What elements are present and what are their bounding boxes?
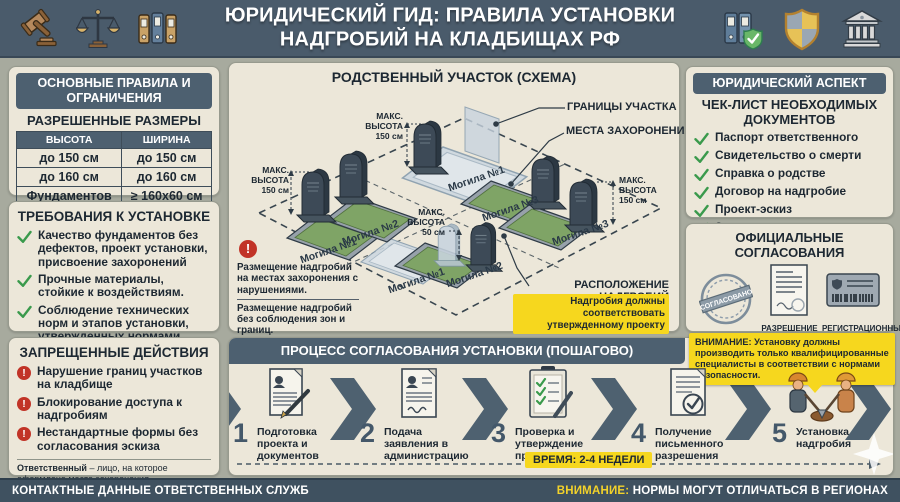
checklist-icon	[525, 366, 573, 425]
approvals-panel: ОФИЦИАЛЬНЫЕ СОГЛАСОВАНИЯ СОГЛАСОВАНО СОГ…	[685, 223, 894, 332]
headstone	[297, 169, 336, 222]
warning-icon: !	[17, 397, 31, 411]
sizes-col-height: ВЫСОТА	[17, 132, 122, 149]
checklist-title: ЧЕК-ЛИСТ НЕОБХОДИМЫХ ДОКУМЕНТОВ	[686, 98, 893, 128]
check-icon	[694, 167, 709, 182]
table-cell: до 160 см	[17, 168, 122, 187]
list-item: Качество фундаментов без дефектов, проек…	[9, 229, 219, 273]
page-title-line1: ЮРИДИЧЕСКИЙ ГИД: ПРАВИЛА УСТАНОВКИ	[200, 4, 700, 28]
sizes-table: ВЫСОТА ШИРИНА до 150 см до 150 см до 160…	[16, 131, 212, 206]
check-icon	[694, 149, 709, 164]
header-icons-left	[16, 7, 180, 51]
list-item: Свидетельство о смерти	[686, 149, 893, 167]
list-item: ! Нестандартные формы без согласования э…	[9, 426, 219, 457]
page-title-line2: НАДГРОБИЙ НА КЛАДБИЩАХ РФ	[200, 28, 700, 52]
list-item: Паспорт ответственного	[686, 131, 893, 149]
scheme-title: РОДСТВЕННЫЙ УЧАСТОК (СХЕМА)	[229, 69, 679, 85]
approvals-icons: СОГЛАСОВАНО СОГЛАСОВАНО РАЗРЕШЕНИЕ НА УС…	[694, 264, 885, 343]
table-cell: до 150 см	[17, 149, 122, 168]
check-icon	[694, 203, 709, 218]
attention-label: ВНИМАНИЕ:	[695, 337, 752, 347]
requirements-title: ТРЕБОВАНИЯ К УСТАНОВКЕ	[13, 209, 215, 224]
requirement-text: Качество фундаментов без дефектов, проек…	[38, 229, 211, 269]
placement-note: Надгробия должны соответствовать утвержд…	[513, 294, 669, 334]
approval-item: РЕГИСТРАЦИОННЫЙ НОМЕР	[822, 264, 885, 343]
document-item: Проект-эскиз	[715, 203, 792, 216]
document-item: Паспорт ответственного	[715, 131, 858, 144]
bank-icon	[840, 7, 884, 51]
step-label: Установка надгробия	[796, 426, 886, 450]
max-height-label: МАКС. ВЫСОТА 150 см	[619, 175, 667, 205]
legal-header: ЮРИДИЧЕСКИЙ АСПЕКТ	[693, 73, 886, 94]
page-title: ЮРИДИЧЕСКИЙ ГИД: ПРАВИЛА УСТАНОВКИ НАДГР…	[200, 4, 700, 53]
time-badge: ВРЕМЯ: 2-4 НЕДЕЛИ	[525, 452, 652, 468]
warning-icon: !	[17, 366, 31, 380]
approval-item: РАЗРЕШЕНИЕ НА УСТАНОВКУ	[758, 264, 821, 343]
legal-panel: ЮРИДИЧЕСКИЙ АСПЕКТ ЧЕК-ЛИСТ НЕОБХОДИМЫХ …	[685, 66, 894, 218]
step-number: 3	[491, 418, 506, 449]
rules-header: ОСНОВНЫЕ ПРАВИЛА И ОГРАНИЧЕНИЯ	[16, 73, 212, 109]
check-icon	[694, 185, 709, 200]
permit-document-icon	[769, 264, 809, 316]
plot-borders-label: ГРАНИЦЫ УЧАСТКА	[567, 101, 677, 113]
step-number: 4	[631, 418, 646, 449]
binders-icon	[136, 7, 180, 51]
step-number: 1	[233, 418, 248, 449]
rules-panel: ОСНОВНЫЕ ПРАВИЛА И ОГРАНИЧЕНИЯ РАЗРЕШЕНН…	[8, 66, 220, 196]
requirement-text: Прочные материалы, стойкие к воздействия…	[38, 273, 211, 300]
max-height-label: МАКС. ВЫСОТА 50 см	[399, 207, 445, 237]
approvals-title: ОФИЦИАЛЬНЫЕ СОГЛАСОВАНИЯ	[688, 230, 891, 260]
forbidden-title: ЗАПРЕЩЕННЫЕ ДЕЙСТВИЯ	[13, 345, 215, 360]
workers-icon	[779, 368, 865, 427]
list-item: ! Нарушение границ участков на кладбище	[9, 365, 219, 396]
header-icons-right	[720, 7, 884, 51]
violation-text: Размещение надгробий без соблюдения зон …	[237, 303, 359, 337]
footer-region-note: ВНИМАНИЕ: НОРМЫ МОГУТ ОТЛИЧАТЬСЯ В РЕГИО…	[557, 485, 888, 497]
max-height-label: МАКС. ВЫСОТА 150 см	[355, 111, 403, 141]
step-number: 2	[360, 418, 375, 449]
forbidden-text: Нарушение границ участков на кладбище	[37, 365, 211, 392]
forbidden-text: Блокирование доступа к надгробиям	[37, 396, 211, 423]
list-item: Прочные материалы, стойкие к воздействия…	[9, 273, 219, 304]
shield-icon	[780, 7, 824, 51]
requirements-panel: ТРЕБОВАНИЯ К УСТАНОВКЕ Качество фундамен…	[8, 201, 220, 332]
list-item: Проект-эскиз	[686, 203, 893, 221]
footer-attention-label: ВНИМАНИЕ:	[557, 485, 630, 497]
application-icon	[396, 366, 442, 425]
process-title: ПРОЦЕСС СОГЛАСОВАНИЯ УСТАНОВКИ (ПОШАГОВО…	[229, 338, 685, 364]
footer-bar: КОНТАКТНЫЕ ДАННЫЕ ОТВЕТСТВЕННЫХ СЛУЖБ ВН…	[0, 478, 900, 502]
footer-attention-text: НОРМЫ МОГУТ ОТЛИЧАТЬСЯ В РЕГИОНАХ	[629, 485, 888, 497]
infographic-page: ЮРИДИЧЕСКИЙ ГИД: ПРАВИЛА УСТАНОВКИ НАДГР…	[0, 0, 900, 502]
forbidden-text: Нестандартные формы без согласования эск…	[37, 426, 211, 453]
step-number: 5	[772, 418, 787, 449]
document-item: Договор на надгробие	[715, 185, 846, 198]
check-icon	[694, 131, 709, 146]
warning-icon: !	[17, 427, 31, 441]
violations-note: Размещение надгробий на местах захоронен…	[237, 262, 359, 337]
ghost-slab	[465, 107, 499, 163]
document-item: Свидетельство о смерти	[715, 149, 861, 162]
headstone	[335, 151, 374, 204]
process-panel: ПРОЦЕСС СОГЛАСОВАНИЯ УСТАНОВКИ (ПОШАГОВО…	[228, 337, 894, 476]
header-bar: ЮРИДИЧЕСКИЙ ГИД: ПРАВИЛА УСТАНОВКИ НАДГР…	[0, 0, 900, 58]
sizes-col-width: ШИРИНА	[122, 132, 212, 149]
document-item: Справка о родстве	[715, 167, 825, 180]
footer-contacts: КОНТАКТНЫЕ ДАННЫЕ ОТВЕТСТВЕННЫХ СЛУЖБ	[12, 485, 309, 497]
step-label: Подача заявления в администрацию	[384, 426, 474, 462]
registration-card-icon	[825, 264, 881, 316]
violation-text: Размещение надгробий на местах захоронен…	[237, 262, 359, 300]
forbidden-panel: ЗАПРЕЩЕННЫЕ ДЕЙСТВИЯ ! Нарушение границ …	[8, 337, 220, 476]
step-label: Подготовка проекта и документов	[257, 426, 347, 462]
plot-scheme-panel: РОДСТВЕННЫЙ УЧАСТОК (СХЕМА) ГРАНИЦЫ УЧАС…	[228, 62, 680, 332]
warning-icon: !	[239, 240, 257, 258]
check-icon	[17, 273, 32, 288]
step-label: Получение письменного разрешения	[655, 426, 733, 462]
binders-check-icon	[720, 7, 764, 51]
list-item: Справка о родстве	[686, 167, 893, 185]
check-icon	[17, 229, 32, 244]
table-row: до 150 см до 150 см	[17, 149, 212, 168]
table-cell: до 160 см	[122, 168, 212, 187]
definition-term: Ответственный	[17, 463, 87, 473]
check-icon	[17, 304, 32, 319]
list-item: ! Блокирование доступа к надгробиям	[9, 396, 219, 427]
gavel-icon	[16, 7, 60, 51]
table-cell: до 150 см	[122, 149, 212, 168]
approved-stamp-icon: СОГЛАСОВАНО	[699, 272, 753, 326]
burial-places-label: МЕСТА ЗАХОРОНЕНИЯ	[566, 125, 692, 137]
document-pen-icon	[267, 366, 313, 425]
list-item: Договор на надгробие	[686, 185, 893, 203]
approved-document-icon	[666, 366, 712, 425]
max-height-label: МАКС. ВЫСОТА 150 см	[241, 165, 289, 195]
scales-icon	[76, 7, 120, 51]
table-row: до 160 см до 160 см	[17, 168, 212, 187]
sizes-title: РАЗРЕШЕННЫЕ РАЗМЕРЫ	[9, 113, 219, 128]
